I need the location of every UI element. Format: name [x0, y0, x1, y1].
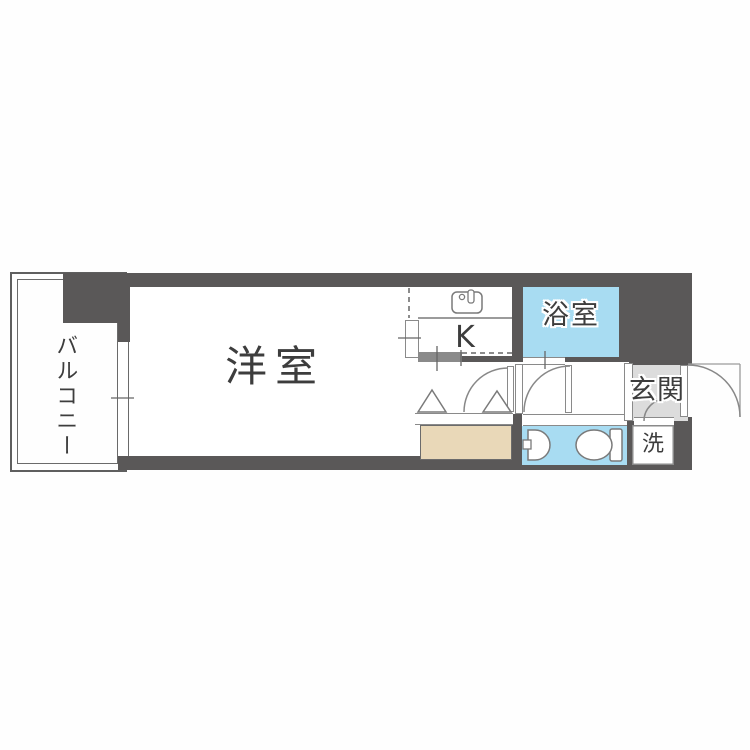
balcony-label: バルコニー — [52, 326, 76, 466]
toilet-bowl-icon — [576, 430, 612, 460]
folding-door-icon — [483, 391, 511, 412]
bathroom-label: 浴室 — [523, 301, 619, 331]
kitchen-label: K — [440, 321, 490, 354]
folding-door-icon — [418, 390, 446, 412]
entrance-label: 玄関 — [626, 376, 688, 406]
western-room-label: 洋室 — [130, 344, 420, 390]
faucet-icon — [468, 290, 474, 303]
laundry-label: 洗 — [642, 433, 664, 457]
laundry-pan-inner: 洗 — [632, 425, 674, 465]
bathroom-door-arc — [524, 366, 570, 412]
entrance-door-arc — [688, 365, 740, 417]
floor-plan: 洗 バルコニー 洋室 K 浴室 玄関 — [0, 0, 750, 750]
laundry-pan: 洗 — [632, 425, 674, 465]
washbasin-tap-icon — [523, 440, 531, 449]
kitchen-sink-icon — [452, 292, 482, 313]
